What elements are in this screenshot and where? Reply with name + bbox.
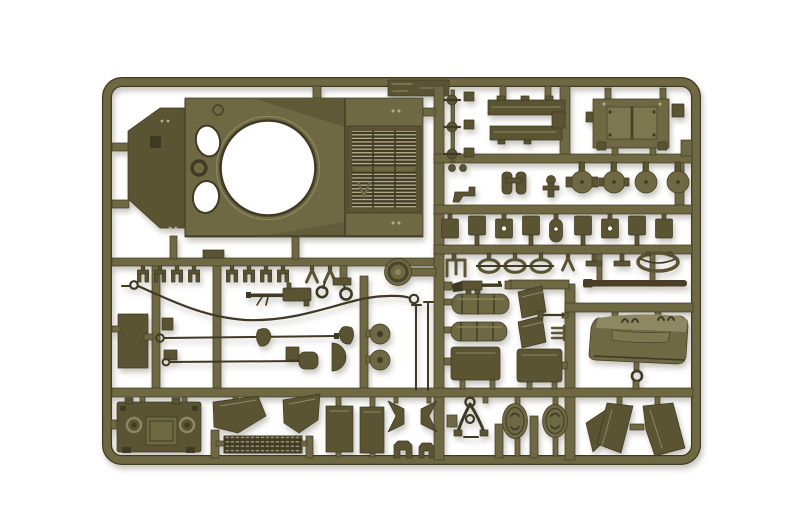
t-bracket-2 — [614, 254, 630, 266]
d-bracket — [332, 343, 346, 371]
fender-right — [283, 394, 320, 433]
towing-hook — [632, 362, 642, 389]
gun-barrel — [583, 279, 687, 288]
sprue-photo — [0, 0, 800, 530]
antenna-rods — [412, 302, 433, 390]
side-panel — [112, 314, 153, 368]
fork-part — [563, 254, 574, 270]
small-trident — [552, 326, 564, 340]
ring-parts — [317, 278, 352, 300]
machine-gun — [246, 283, 311, 306]
rod-with-cap — [538, 311, 564, 319]
fender-left — [213, 396, 266, 433]
small-pistol-bracket — [453, 187, 475, 202]
return-rollers — [366, 324, 390, 370]
upper-hull — [128, 98, 423, 237]
stowage-rolls — [451, 294, 509, 341]
sprue — [107, 80, 696, 460]
trident-part — [447, 254, 465, 276]
sand-shield-sections — [451, 347, 562, 382]
chevron-wedges — [388, 401, 437, 432]
rear-plate — [117, 398, 201, 453]
tool-rods — [156, 318, 353, 371]
louver-grille — [216, 436, 307, 453]
photo-stage — [0, 0, 800, 530]
shovel-blade — [299, 352, 318, 369]
periscope-knobs — [444, 92, 474, 159]
travel-lock — [454, 398, 488, 438]
binocular-periscope — [502, 172, 526, 194]
bolt-part — [543, 176, 559, 198]
mudguard-fins — [586, 403, 685, 456]
small-block-part — [672, 104, 684, 117]
small-knob-2 — [460, 165, 467, 172]
engine-access-panel — [586, 99, 669, 150]
sponson-strip-2 — [490, 112, 565, 144]
hatch-discs — [566, 162, 689, 193]
suspension-brackets-row — [442, 214, 673, 246]
stowage-bin — [589, 314, 688, 364]
tow-cable — [122, 281, 418, 320]
oval-ring-part — [638, 252, 678, 271]
idler-wheel — [385, 259, 412, 286]
skirt-panels — [326, 406, 384, 453]
engine-grille — [347, 126, 421, 213]
small-knob-1 — [449, 165, 456, 172]
shackle-row — [447, 252, 678, 276]
